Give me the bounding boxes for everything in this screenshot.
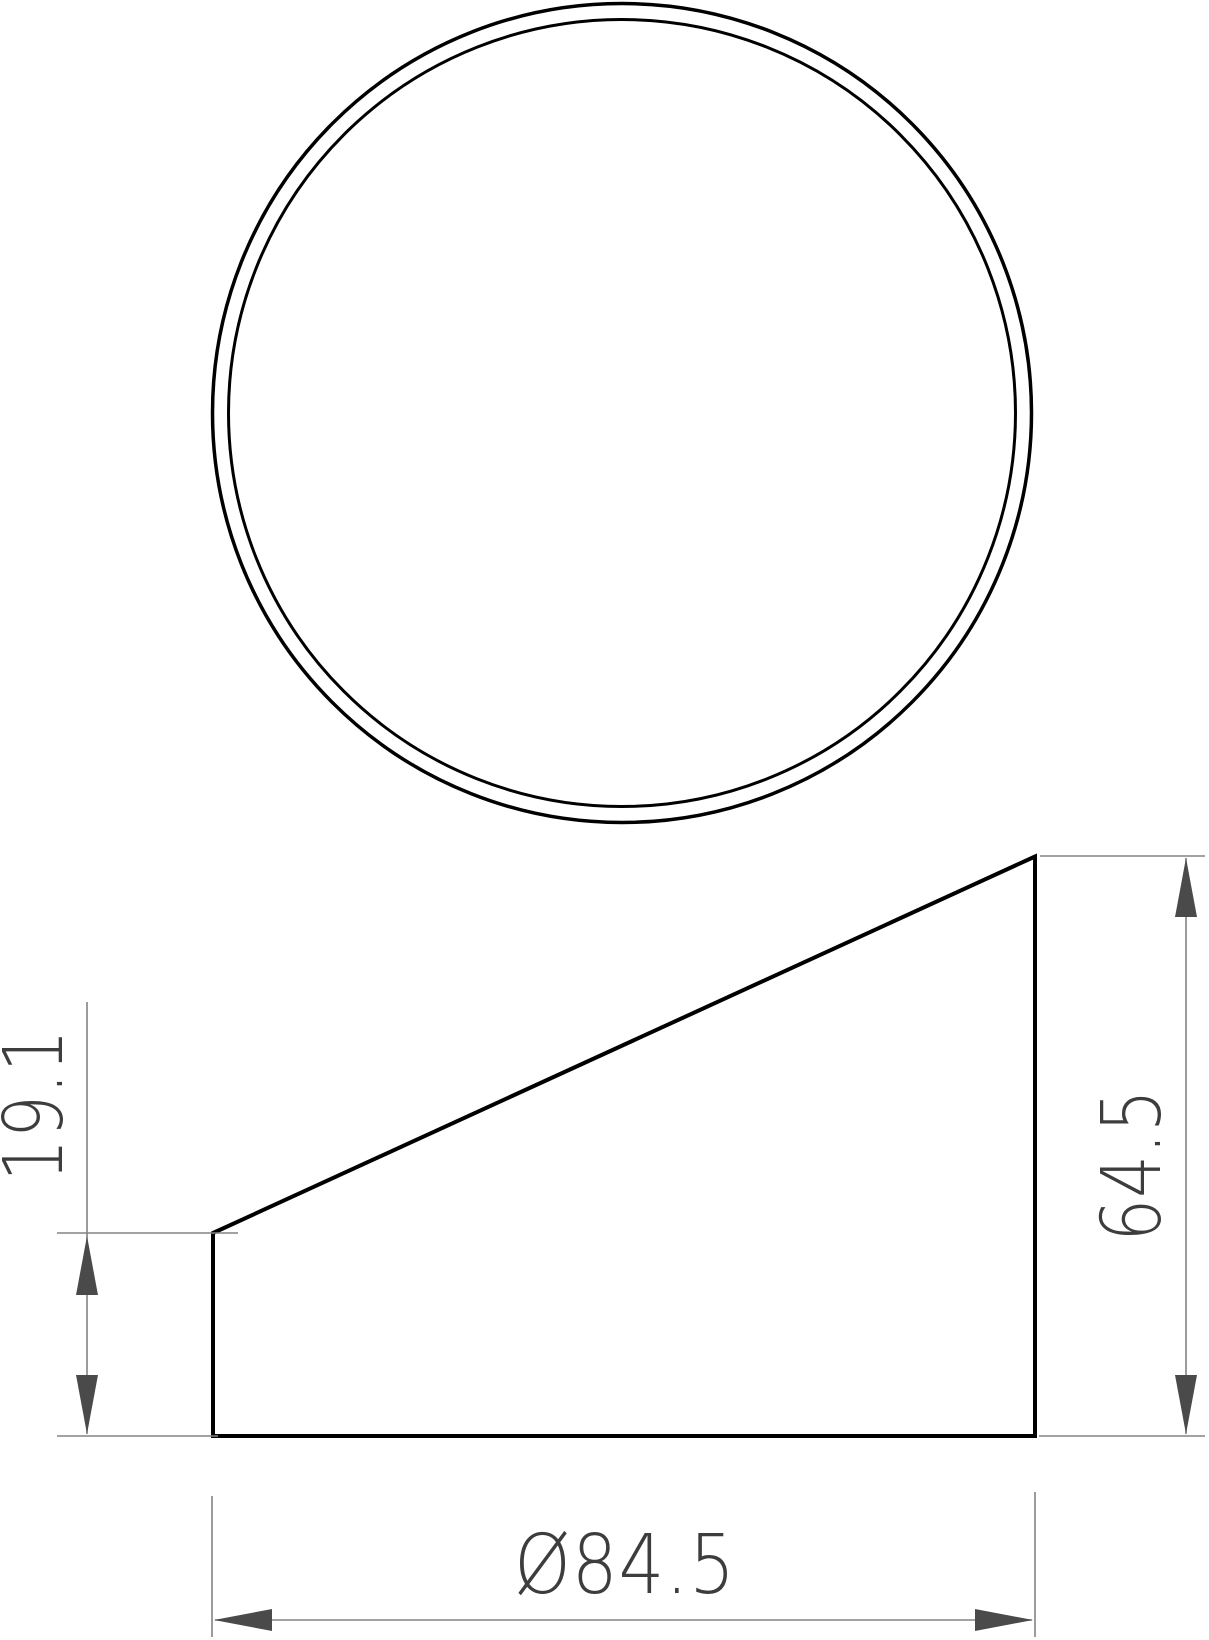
arrowhead-down-icon bbox=[76, 1375, 98, 1434]
side-view bbox=[213, 857, 1035, 1437]
dimension-label: 19.1 bbox=[0, 1029, 82, 1182]
drawing-canvas: 19.1 64.5 Ø84.5 bbox=[0, 0, 1209, 1640]
arrowhead-up-icon bbox=[1175, 858, 1197, 917]
top-view-inner-circle bbox=[229, 20, 1016, 807]
top-view bbox=[213, 4, 1032, 823]
dimension-label: Ø84.5 bbox=[514, 1518, 736, 1614]
dimension-right-height: 64.5 bbox=[1039, 856, 1205, 1436]
side-view-wedge-outline bbox=[213, 857, 1035, 1437]
arrowhead-down-icon bbox=[1175, 1375, 1197, 1434]
dimension-diameter: Ø84.5 bbox=[212, 1492, 1035, 1637]
arrowhead-right-icon bbox=[975, 1609, 1033, 1631]
dimension-label: 64.5 bbox=[1083, 1089, 1179, 1242]
technical-drawing: 19.1 64.5 Ø84.5 bbox=[0, 0, 1209, 1640]
top-view-outer-circle bbox=[213, 4, 1032, 823]
arrowhead-up-icon bbox=[76, 1236, 98, 1295]
dimension-left-height: 19.1 bbox=[0, 1002, 238, 1436]
arrowhead-left-icon bbox=[214, 1609, 272, 1631]
